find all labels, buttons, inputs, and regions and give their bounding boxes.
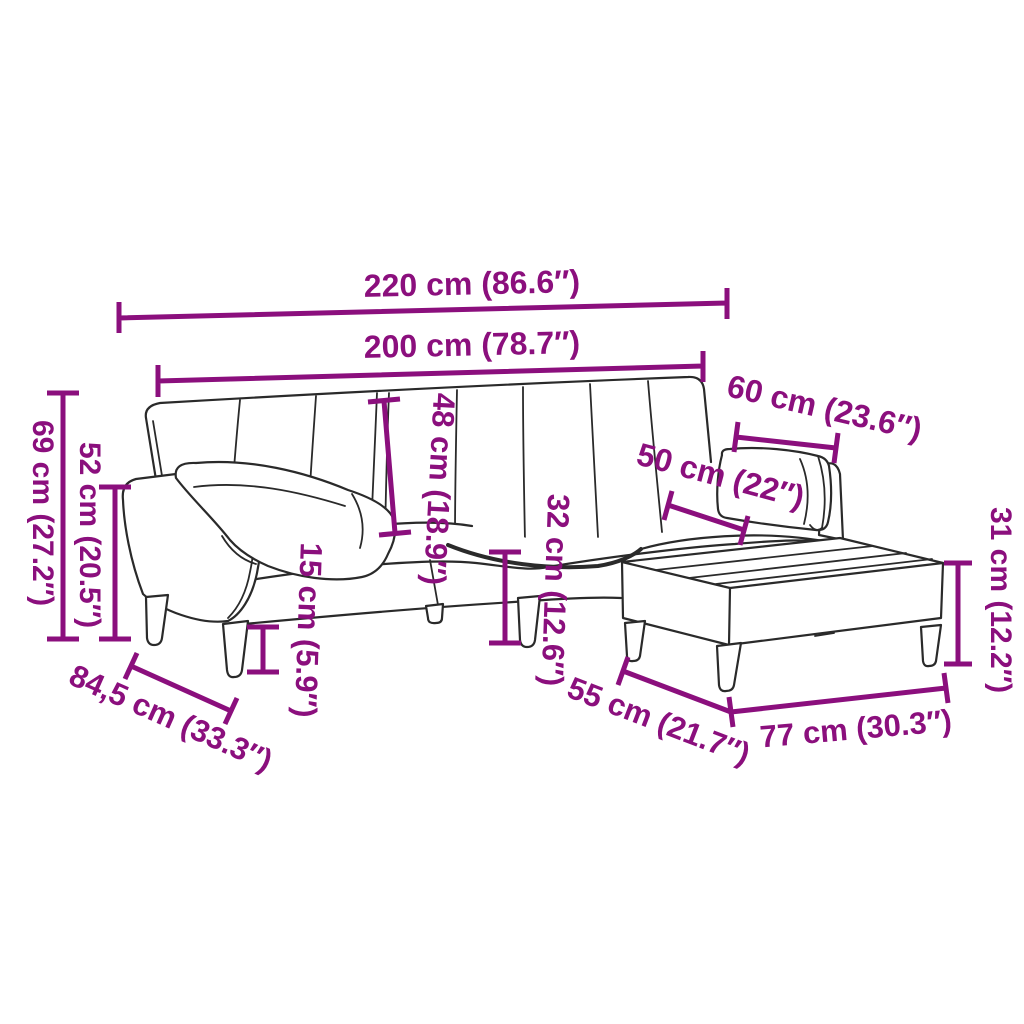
sofa-leg-rear-stub [426,604,443,623]
dim-seat-height-label: 32 cm (12.6″) [534,493,576,686]
dim-footstool-height-label: 31 cm (12.2″) [984,507,1017,693]
sofa-leg-front-left [146,595,168,645]
dim-footstool-width: 77 cm (30.3″) [729,673,953,755]
dim-overall-height-label: 69 cm (27.2″) [26,420,59,606]
dim-footstool-height-line [944,563,972,664]
footstool-front-corner-edge [729,588,730,645]
sofa-dimension-illustration: 220 cm (86.6″) 200 cm (78.7″) 69 cm (27.… [0,0,1024,1024]
dim-inner-width-label: 200 cm (78.7″) [363,324,580,365]
dim-armrest-height: 52 cm (20.5″) [73,442,131,639]
dimension-diagram: 220 cm (86.6″) 200 cm (78.7″) 69 cm (27.… [0,0,1024,1024]
dim-overall-width: 220 cm (86.6″) [119,263,727,333]
dim-pillow-width-label: 60 cm (23.6″) [724,368,926,448]
dim-leg-height-label: 15 cm (5.9″) [288,542,329,718]
dim-footstool-height: 31 cm (12.2″) [944,507,1017,693]
footstool-leg-left [625,621,645,661]
footstool-leg-front [717,643,741,691]
dim-overall-height: 69 cm (27.2″) [26,393,79,639]
dim-overall-width-label: 220 cm (86.6″) [363,263,580,304]
footstool-leg-right [921,625,941,666]
sofa-leg-arm-front [223,621,248,677]
dim-overall-depth-label: 84,5 cm (33.3″) [64,658,278,779]
dim-footstool-width-label: 77 cm (30.3″) [758,703,953,755]
dim-overall-depth: 84,5 cm (33.3″) [64,653,278,778]
dim-armrest-height-label: 52 cm (20.5″) [73,442,106,628]
dim-leg-height-line [247,627,279,672]
